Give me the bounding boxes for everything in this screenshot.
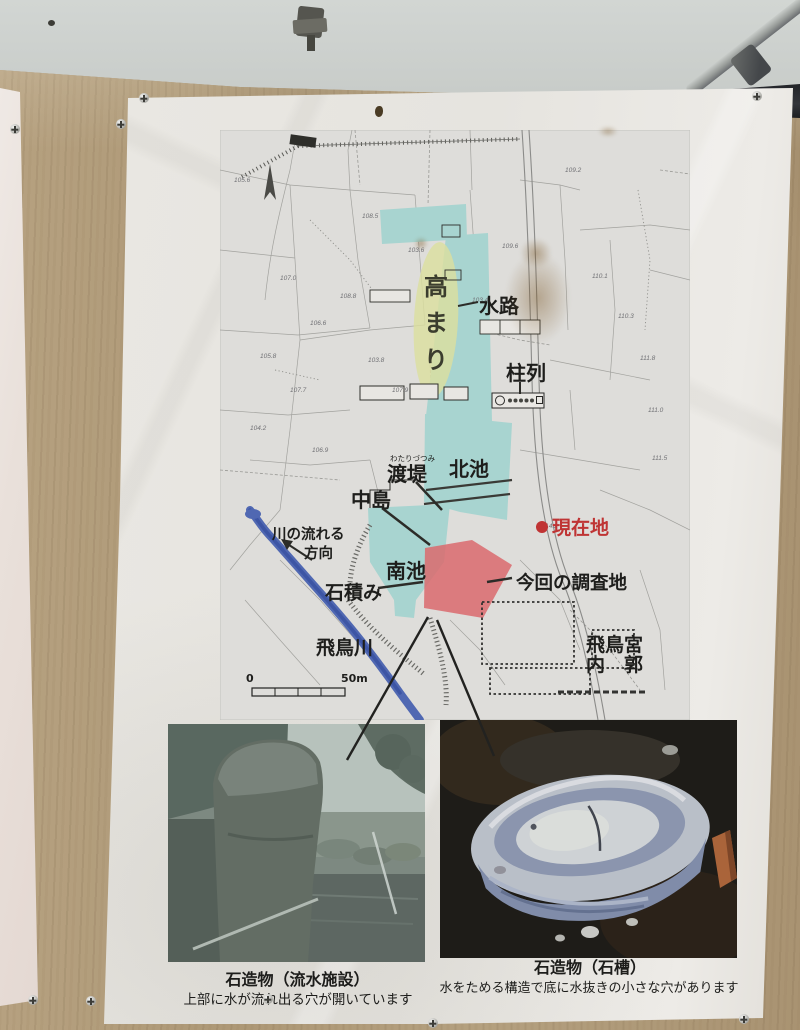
current-location-dot-icon [536,521,548,533]
label-takamari-1: 高 [424,273,448,301]
photo-stone-basin [440,720,737,958]
label-suiro: 水路 [479,294,520,318]
scale-zero: 0 [246,672,254,685]
svg-text:105.8: 105.8 [260,353,277,360]
right-photo-caption: 水をためる構造で底に水抜きの小さな穴があります [430,979,748,997]
scale-fifty: 50m [341,672,368,685]
svg-text:111.5: 111.5 [652,455,668,462]
svg-text:106.6: 106.6 [310,320,327,327]
label-river-flow-1: 川の流れる [271,525,345,543]
right-photo-title: 石造物（石槽） [440,958,740,980]
label-minamiike: 南池 [386,559,426,583]
svg-text:106.9: 106.9 [312,447,329,454]
left-photo-caption: 上部に水が流れ出る穴が開いています [163,991,433,1009]
label-nakajima: 中島 [351,488,391,512]
label-chosachi: 今回の調査地 [515,572,628,594]
debris-speck [375,106,383,117]
pillar-row [492,393,544,408]
metal-bracket [291,5,331,53]
screw-icon [116,119,126,129]
svg-text:109.2: 109.2 [565,167,582,174]
label-river-flow-2: 方向 [304,544,333,562]
svg-text:107.9: 107.9 [392,387,409,394]
screw-icon [739,1014,749,1024]
label-kitaike: 北池 [449,457,489,481]
svg-text:104.2: 104.2 [250,425,267,432]
wall-speck [48,20,55,26]
screw-icon [428,1018,438,1028]
svg-text:110.1: 110.1 [592,273,608,280]
svg-text:105.6: 105.6 [234,177,251,184]
svg-text:103.6: 103.6 [408,247,425,254]
label-churetsu: 柱列 [506,361,546,385]
screw-icon [86,996,96,1006]
bracket-leg [307,35,315,51]
excavation-site-map: 105.6 109.2 108.5 103.4 109.6 103.6 107.… [220,130,690,720]
label-takamari-3: り [424,346,448,374]
bracket-plate [293,18,328,34]
svg-text:108.8: 108.8 [340,293,357,300]
label-naikaku: 内 郭 [586,653,643,676]
screw-icon [10,124,20,134]
screw-icon [263,994,273,1004]
left-photo-title: 石造物（流水施設） [175,970,420,992]
signboard-photo: 105.6 109.2 108.5 103.4 109.6 103.6 107.… [0,0,800,1030]
svg-text:110.3: 110.3 [618,313,634,320]
label-takamari-2: ま [424,309,448,337]
photo-stone-water-structure [168,724,425,962]
svg-text:111.8: 111.8 [640,355,656,362]
svg-text:109.6: 109.6 [502,243,519,250]
label-asukakyu: 飛鳥宮 [586,633,643,656]
svg-text:107.7: 107.7 [290,387,307,394]
svg-text:103.8: 103.8 [368,357,385,364]
screw-icon [28,995,38,1005]
label-watarizutsumi: 渡堤 [387,462,428,486]
screw-icon [752,91,762,101]
svg-text:107.0: 107.0 [280,275,297,282]
svg-text:108.5: 108.5 [362,213,379,220]
label-asukagawa: 飛鳥川 [316,636,373,659]
label-ishizumi: 石積み [324,581,382,604]
label-genzaichi: 現在地 [552,516,609,539]
screw-icon [139,93,149,103]
svg-text:111.0: 111.0 [648,407,664,414]
